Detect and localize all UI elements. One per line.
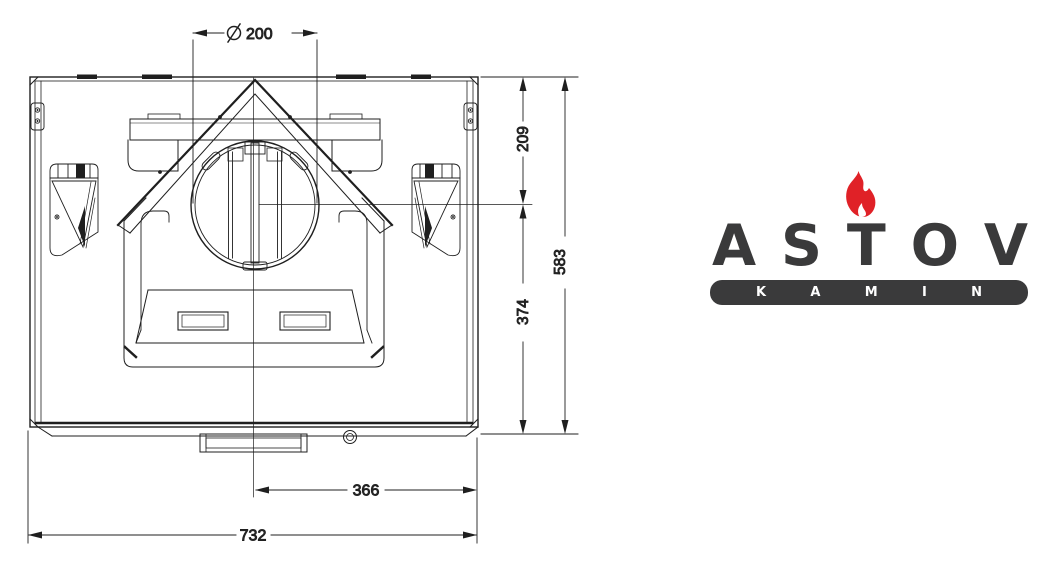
brand-letter: T xyxy=(847,217,886,275)
mounting-plate xyxy=(130,114,380,140)
collar-slot-right xyxy=(288,150,309,171)
right-hinge-plate xyxy=(464,103,477,130)
page: 200 209 374 xyxy=(0,0,1050,578)
left-hinge-plate xyxy=(31,103,44,130)
brace-holes xyxy=(158,115,352,174)
flue-collar xyxy=(191,141,319,270)
collar-slot-left xyxy=(200,150,221,171)
knob xyxy=(344,431,357,444)
damper-bar xyxy=(228,142,282,270)
diameter-symbol xyxy=(228,24,241,42)
brand-letter: S xyxy=(781,217,822,275)
right-duct-wing xyxy=(332,140,382,171)
badge-letter: A xyxy=(810,280,820,305)
kamin-badge: K A M I N xyxy=(710,280,1028,305)
air-slot-left xyxy=(178,312,228,330)
air-slot-right xyxy=(280,312,330,330)
dim-flue-diameter: 200 xyxy=(193,24,317,203)
astov-logo: A S T O V K A M I N xyxy=(700,167,1030,312)
right-bracket xyxy=(412,164,460,256)
dim-total-depth-label: 583 xyxy=(552,249,569,275)
brand-letter: O xyxy=(911,217,959,275)
badge-letter: N xyxy=(971,280,982,305)
brand-wordmark: A S T O V xyxy=(712,217,1028,275)
fireplace-top-view-drawing: 200 209 374 xyxy=(0,0,600,578)
dim-center-to-side-label: 366 xyxy=(353,483,380,500)
badge-letter: I xyxy=(922,280,927,305)
dim-total-width-label: 732 xyxy=(240,528,267,545)
brand-letter: V xyxy=(984,217,1028,275)
left-bracket xyxy=(50,164,98,256)
dim-flue-diameter-label: 200 xyxy=(246,26,273,43)
badge-letter: K xyxy=(756,280,766,305)
left-duct-wing xyxy=(128,140,178,171)
brand-letter: A xyxy=(712,217,756,275)
dim-right-side: 209 374 583 xyxy=(481,77,578,434)
badge-letter: M xyxy=(865,280,878,305)
dim-flue-center-to-front-label: 374 xyxy=(515,299,532,325)
dim-rear-to-flue-center-label: 209 xyxy=(515,126,532,152)
firebox-floor xyxy=(125,290,383,357)
firebox-panel xyxy=(124,198,384,367)
chevron-brace xyxy=(118,80,392,233)
fireplace-body xyxy=(30,77,478,436)
